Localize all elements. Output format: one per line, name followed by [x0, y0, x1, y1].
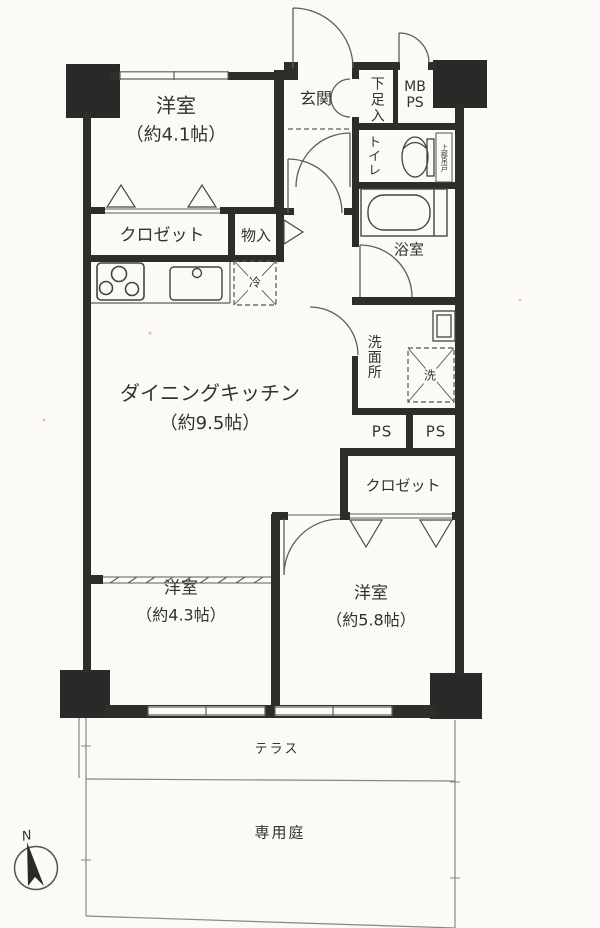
toilet-overhead-cabinet-note: 上部吊戸	[440, 144, 449, 172]
window	[148, 706, 265, 716]
plan-linework	[0, 0, 600, 928]
room-label-closet-2: クロゼット	[365, 477, 440, 496]
window	[120, 71, 228, 80]
room-name: 洋室	[164, 578, 198, 598]
room-size: （約4.3帖）	[136, 606, 225, 626]
room-size: （約5.8帖）	[326, 611, 415, 631]
room-label-bathroom: 浴室	[394, 241, 424, 260]
meter-box-line2: PS	[406, 95, 423, 111]
room-label-western-room-3: 洋室 （約5.8帖）	[326, 583, 415, 630]
washbasin-icon	[433, 311, 455, 341]
kitchen-sink-icon	[170, 267, 222, 300]
room-size: （約9.5帖）	[120, 413, 300, 436]
meter-box-line1: MB	[404, 79, 426, 95]
window	[275, 706, 392, 716]
room-size: （約4.1帖）	[126, 124, 227, 147]
pipe-space-1-label: PS	[372, 423, 393, 442]
compass-icon	[15, 842, 58, 890]
room-name: 洋室	[354, 583, 388, 603]
room-label-closet-1: クロゼット	[120, 225, 205, 246]
private-garden-label: 専用庭	[254, 824, 305, 843]
pipe-space-2-label: PS	[426, 423, 447, 442]
room-label-dining-kitchen: ダイニングキッチン （約9.5帖）	[120, 381, 300, 436]
room-name: ダイニングキッチン	[120, 381, 300, 405]
room-label-western-room-2: 洋室 （約4.3帖）	[136, 578, 225, 625]
refrigerator-label: 冷	[248, 276, 262, 291]
room-label-washroom: 洗面所	[364, 335, 382, 380]
room-name: 洋室	[156, 93, 196, 117]
toilet-icon	[402, 137, 434, 177]
room-label-shoe-box: 下足入	[367, 76, 385, 124]
stove-icon	[97, 263, 144, 300]
kitchen-counter	[91, 262, 230, 303]
room-label-entrance: 玄関	[300, 89, 332, 109]
room-label-western-room-1: 洋室 （約4.1帖）	[126, 93, 227, 147]
washer-label: 洗	[423, 369, 437, 384]
room-label-meter-box: MB PS	[404, 79, 426, 111]
room-label-toilet: トイレ	[364, 135, 380, 177]
room-label-storage: 物入	[241, 227, 271, 246]
bathtub-icon	[361, 189, 447, 236]
terrace-label: テラス	[255, 742, 300, 758]
floor-plan: 洋室 （約4.1帖） 玄関 下足入 MB PS トイレ 上部吊戸 浴室 クロゼッ…	[0, 0, 600, 928]
